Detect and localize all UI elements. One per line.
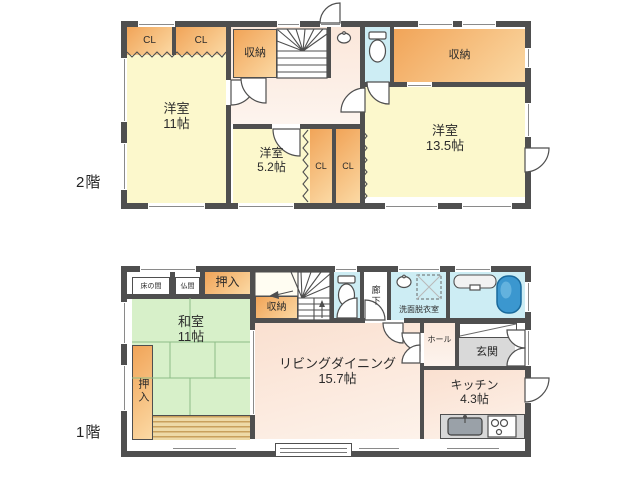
floorplan-canvas: 2階 1階: [0, 0, 640, 480]
room-label: 洋室11帖: [127, 95, 226, 139]
entrance-step: [459, 323, 517, 338]
window: [462, 203, 512, 209]
wall: [365, 82, 407, 87]
wall: [233, 124, 272, 129]
storage-label: 収納: [394, 29, 525, 82]
entrance-label: 玄関: [459, 338, 515, 366]
balcony-door-swing-icon: [320, 3, 340, 23]
door-opening: [525, 378, 531, 403]
window: [148, 203, 205, 209]
window: [140, 266, 196, 272]
floor2-plan: CL CL 収納 収納 洋室11帖 洋室5.2帖 洋室13.5帖 CL CL: [121, 21, 531, 209]
wall: [226, 27, 231, 80]
window: [525, 103, 531, 137]
window: [418, 21, 453, 27]
corridor-label: 廊下: [364, 276, 387, 316]
door-opening: [525, 148, 531, 172]
bay-window-icon: [275, 443, 352, 457]
floor1-label: 1階: [76, 421, 101, 442]
wall: [424, 366, 525, 370]
window: [446, 445, 500, 451]
sliding-door: [407, 82, 432, 87]
window: [172, 445, 237, 451]
hall-label: ホール: [422, 332, 457, 348]
window: [358, 445, 400, 451]
oshiire-label: 押入: [132, 361, 153, 421]
oshiire-label: 押入: [205, 272, 250, 294]
wall: [360, 27, 365, 88]
washroom-label: 洗面脱衣室: [389, 302, 449, 318]
room-label: 洋室13.5帖: [365, 117, 525, 161]
wall: [250, 415, 255, 439]
toilet-2f: [365, 27, 390, 82]
window: [121, 365, 127, 411]
balcony-door-opening: [320, 21, 341, 27]
bathroom: [450, 272, 525, 320]
floor1-plan: 床の間 仏間 押入 収納 廊下 洗面脱衣室 和室11帖 押入 リビングダイニング…: [121, 266, 531, 457]
room-label: キッチン4.3帖: [424, 374, 525, 412]
storage-label: 収納: [255, 296, 298, 320]
room-label: 洋室5.2帖: [233, 139, 310, 183]
window: [462, 21, 496, 27]
closet-label: CL: [176, 27, 226, 55]
window: [385, 203, 438, 209]
window: [121, 302, 127, 344]
window: [398, 266, 440, 272]
window: [121, 143, 127, 190]
window: [238, 203, 294, 209]
window: [525, 282, 531, 312]
tokonoma-label: 床の間: [132, 277, 170, 298]
closet-label: CL: [336, 129, 360, 203]
floor2-label: 2階: [76, 171, 101, 192]
room-label: 和室11帖: [132, 308, 250, 352]
toilet-1f: [333, 272, 360, 320]
wall: [327, 27, 331, 78]
wall: [226, 105, 231, 203]
engawa-veranda: [153, 415, 250, 440]
window: [455, 266, 491, 272]
closet-label: CL: [310, 129, 332, 203]
window: [335, 266, 357, 272]
room-label: リビングダイニング15.7帖: [255, 350, 420, 394]
window: [525, 48, 531, 68]
butsuma-label: 仏間: [175, 277, 200, 298]
storage-label: 収納: [233, 29, 277, 78]
kitchen-counter: [440, 414, 525, 439]
entrance-door-opening: [525, 330, 531, 366]
window: [277, 21, 300, 27]
wall: [432, 82, 525, 87]
wall: [330, 272, 334, 320]
closet-label: CL: [127, 27, 172, 55]
